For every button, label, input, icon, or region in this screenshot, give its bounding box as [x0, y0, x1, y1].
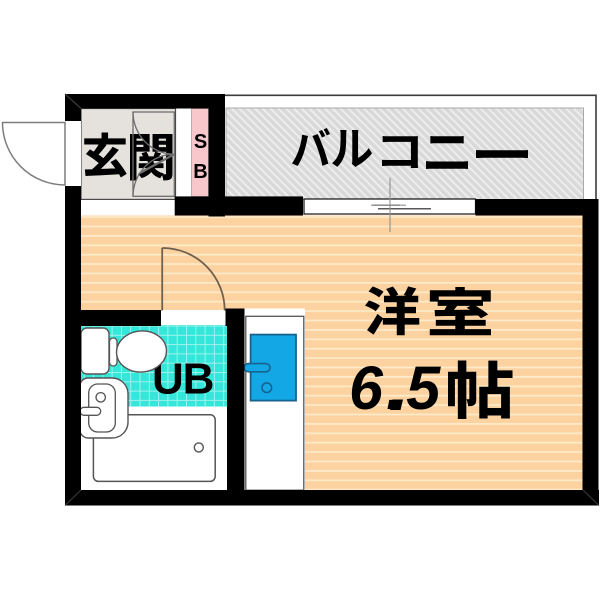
- svg-text:6.5: 6.5: [349, 354, 443, 422]
- svg-text:S: S: [194, 131, 207, 153]
- svg-text:B: B: [193, 161, 207, 183]
